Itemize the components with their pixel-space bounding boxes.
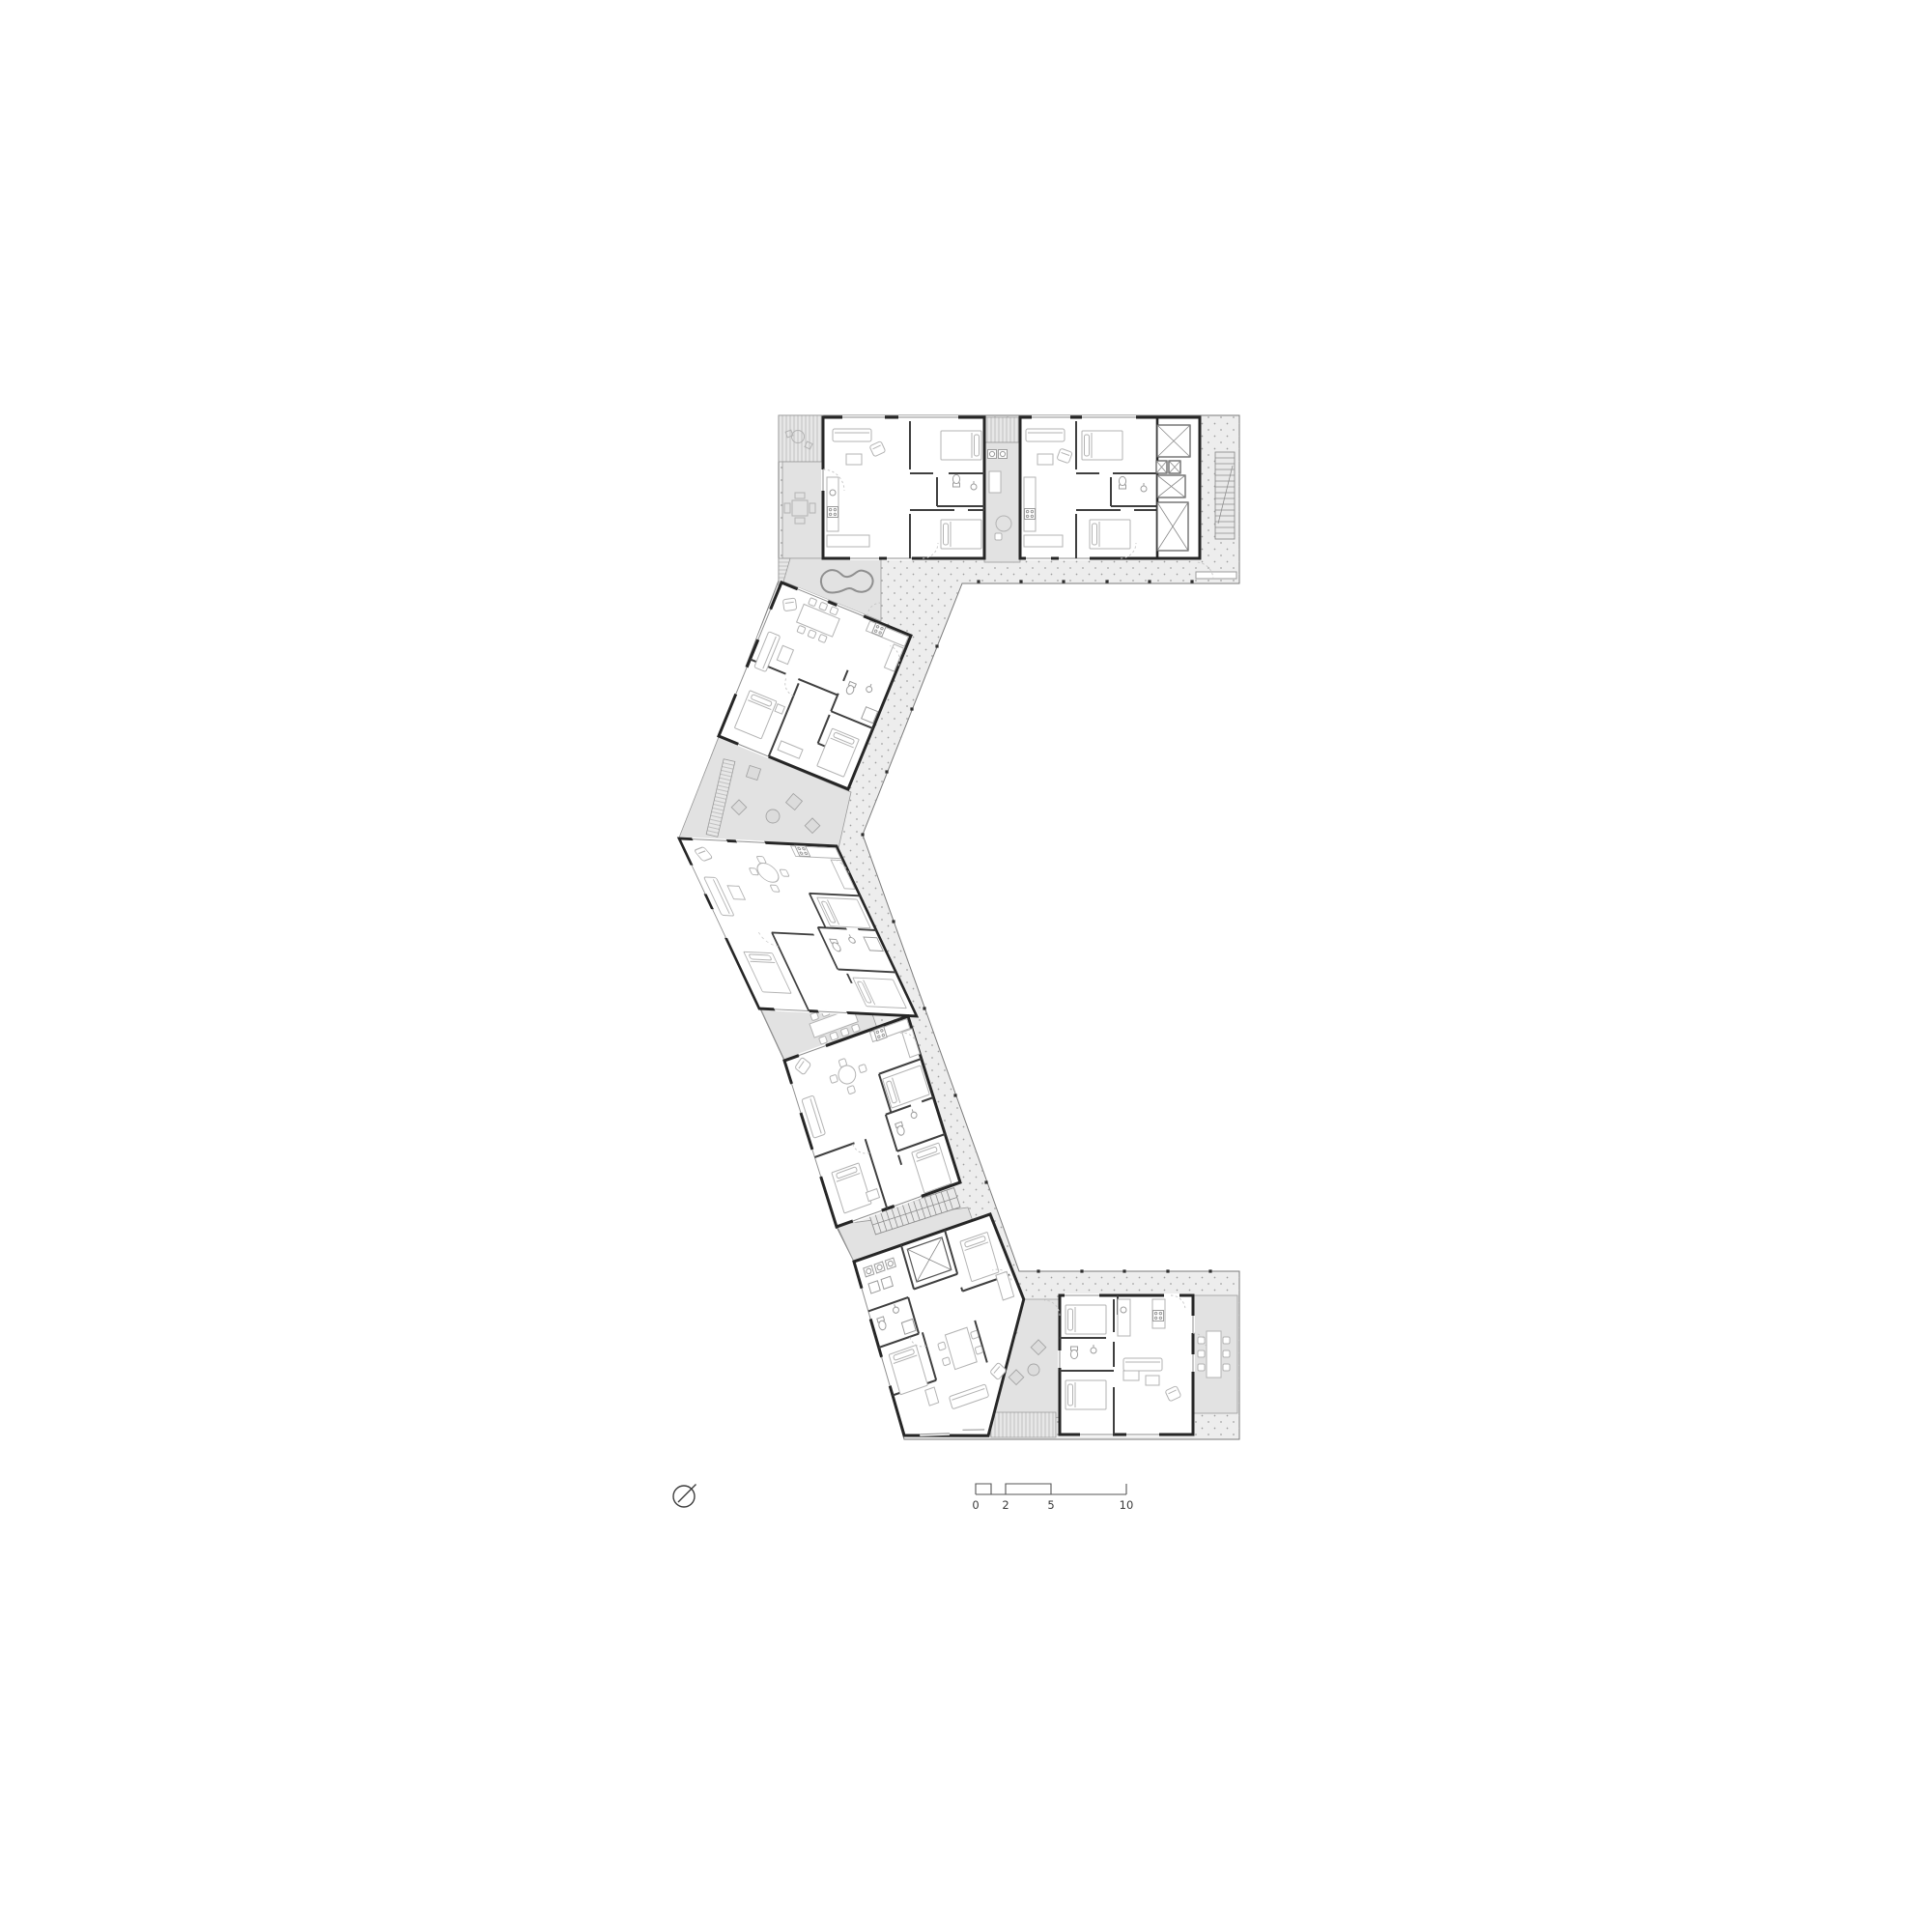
elevator-x-icon (1157, 425, 1190, 457)
balcony-hatched-top-left (779, 415, 823, 462)
unit-top-left (823, 417, 984, 558)
north-arrow-icon (673, 1485, 696, 1508)
elevator-x-icon (1157, 475, 1185, 497)
scale-label-10: 10 (1120, 1498, 1134, 1512)
scale-bar: 0 2 5 10 (972, 1484, 1133, 1512)
scale-label-2: 2 (1002, 1498, 1009, 1512)
elevator-core (1156, 425, 1190, 551)
patio-top-left (782, 462, 823, 558)
deck-hatched-bottom (987, 1412, 1056, 1437)
entry-hatched-strip (984, 417, 1020, 442)
shared-entry-hall (984, 442, 1020, 562)
scale-label-0: 0 (972, 1498, 979, 1512)
unit-top-right (1020, 417, 1213, 580)
shaft-icon (1169, 461, 1180, 473)
scale-label-5: 5 (1047, 1498, 1054, 1512)
floor-plan-canvas: 0 2 5 10 (0, 0, 1932, 1932)
elevator-x-icon (1157, 502, 1188, 551)
shaft-icon (1156, 461, 1167, 473)
